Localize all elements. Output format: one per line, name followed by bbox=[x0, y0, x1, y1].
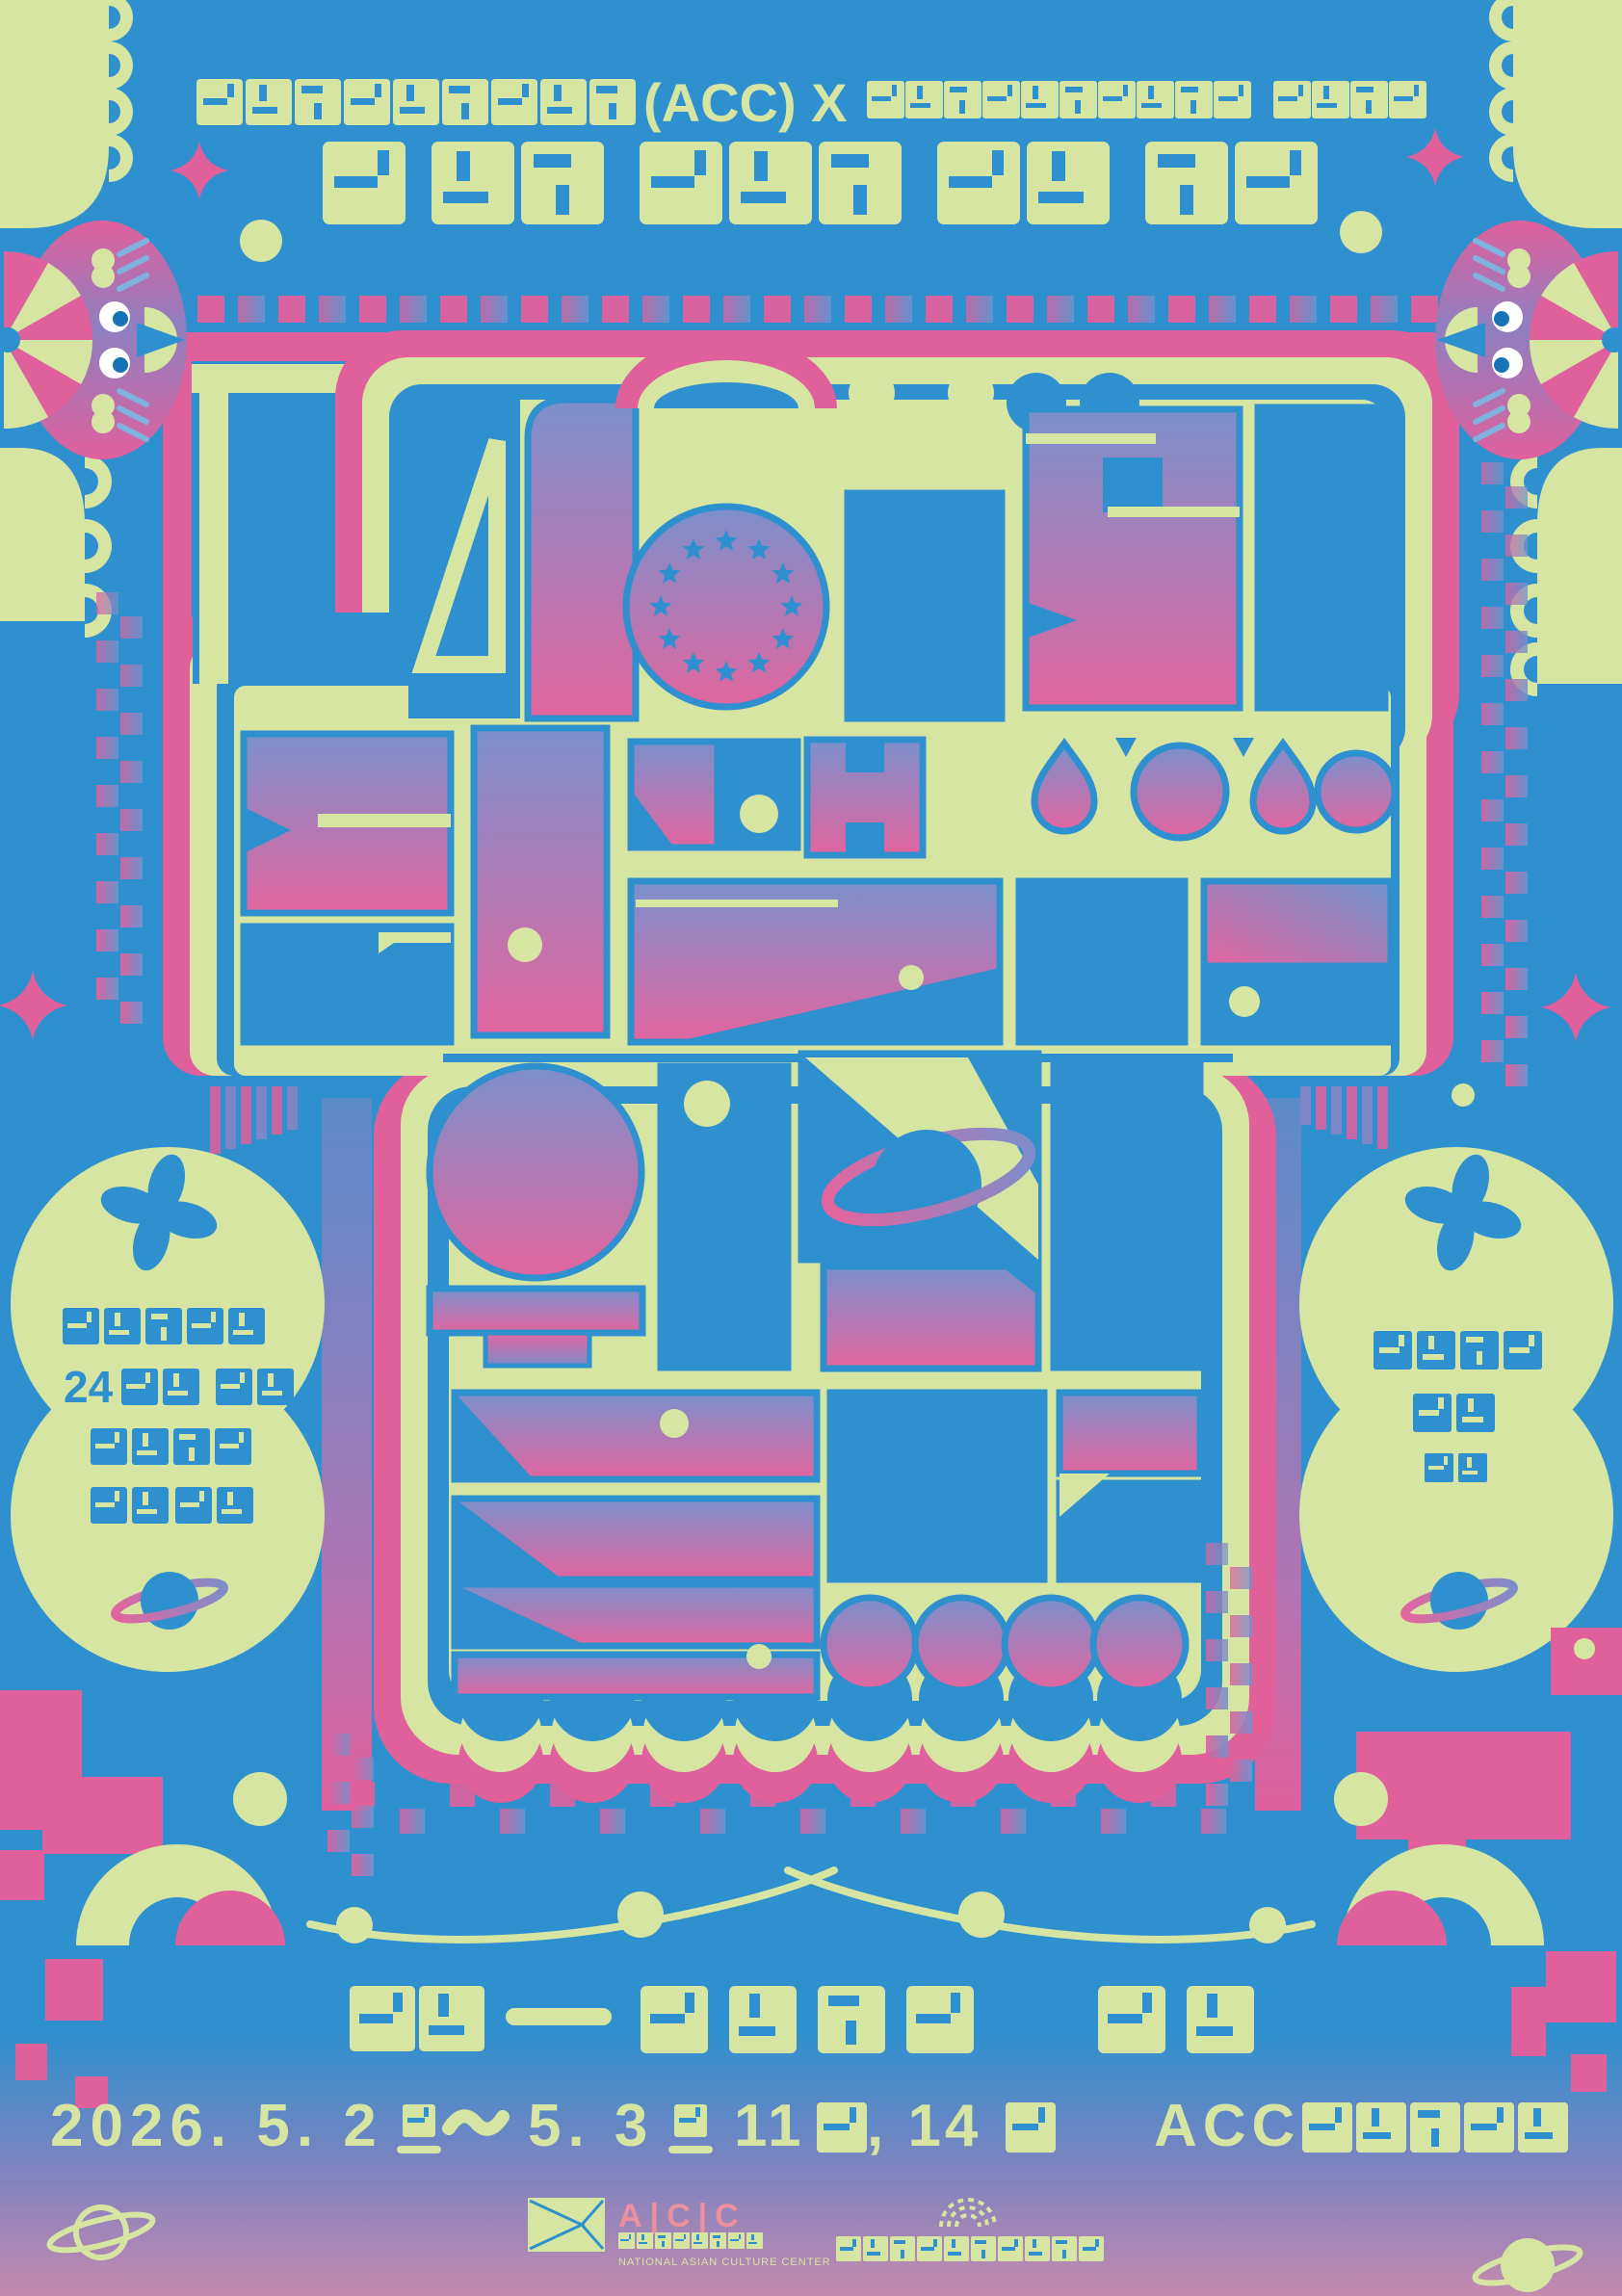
svg-text:24: 24 bbox=[64, 1362, 114, 1412]
svg-text:2026. 5. 2: 2026. 5. 2 bbox=[50, 2093, 383, 2159]
svg-text:A|C|C: A|C|C bbox=[618, 2198, 746, 2234]
svg-text:, 14: , 14 bbox=[867, 2093, 981, 2159]
svg-text:NATIONAL ASIAN CULTURE CENTER: NATIONAL ASIAN CULTURE CENTER bbox=[618, 2257, 831, 2268]
svg-text:5. 3: 5. 3 bbox=[528, 2093, 654, 2159]
svg-text:11: 11 bbox=[734, 2093, 805, 2159]
svg-text:(ACC) X: (ACC) X bbox=[643, 72, 848, 133]
svg-text:ACC: ACC bbox=[1154, 2093, 1300, 2159]
